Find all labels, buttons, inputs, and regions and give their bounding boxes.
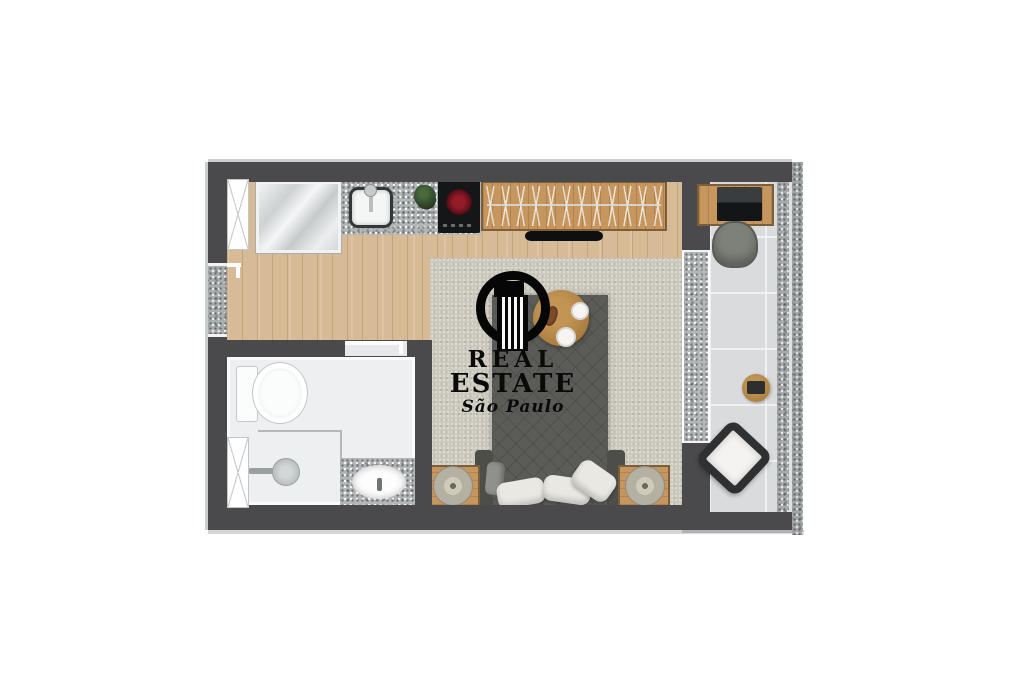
- desk-chair-icon: [712, 221, 758, 268]
- sliding-door-icon: [684, 250, 708, 443]
- laptop-icon: [717, 187, 762, 221]
- faucet-icon: [369, 195, 373, 212]
- balcony-edge-inner: [777, 182, 792, 512]
- burner-icon: [446, 189, 472, 215]
- wardrobe-icon: [481, 181, 667, 231]
- floorplan-canvas: REAL ESTATE São Paulo: [0, 0, 1024, 683]
- tv-icon: [525, 231, 603, 241]
- entry-door-icon: [208, 263, 227, 337]
- bathroom-door-jamb: [399, 341, 403, 354]
- wall-top: [208, 162, 792, 182]
- entry-door-jamb: [236, 263, 240, 278]
- faucet-icon: [364, 184, 377, 197]
- plate-icon: [556, 327, 576, 347]
- wardrobe-rail: [487, 204, 661, 206]
- refrigerator-icon: [256, 181, 341, 253]
- lamp-icon: [433, 466, 473, 506]
- lamp-icon: [625, 466, 665, 506]
- wall-bottom: [208, 505, 703, 530]
- cooktop-controls: [443, 224, 475, 227]
- shower-icon: [272, 458, 300, 486]
- toilet-icon: [252, 362, 308, 424]
- building-icon: [497, 295, 528, 351]
- kitchen-window-icon: [227, 179, 249, 250]
- bathroom-faucet-icon: [377, 478, 382, 491]
- watermark-line1: REAL: [413, 348, 613, 371]
- wall-outer-edge: [208, 530, 804, 534]
- balcony-edge-outer: [792, 162, 803, 535]
- bathroom-door-leaf: [345, 341, 403, 345]
- watermark-line2: ESTATE: [413, 371, 613, 397]
- watermark-line3: São Paulo: [413, 399, 613, 416]
- plate-icon: [571, 302, 589, 320]
- side-table-item: [747, 381, 765, 394]
- bathroom-window-icon: [227, 437, 249, 508]
- wall-left: [208, 162, 227, 530]
